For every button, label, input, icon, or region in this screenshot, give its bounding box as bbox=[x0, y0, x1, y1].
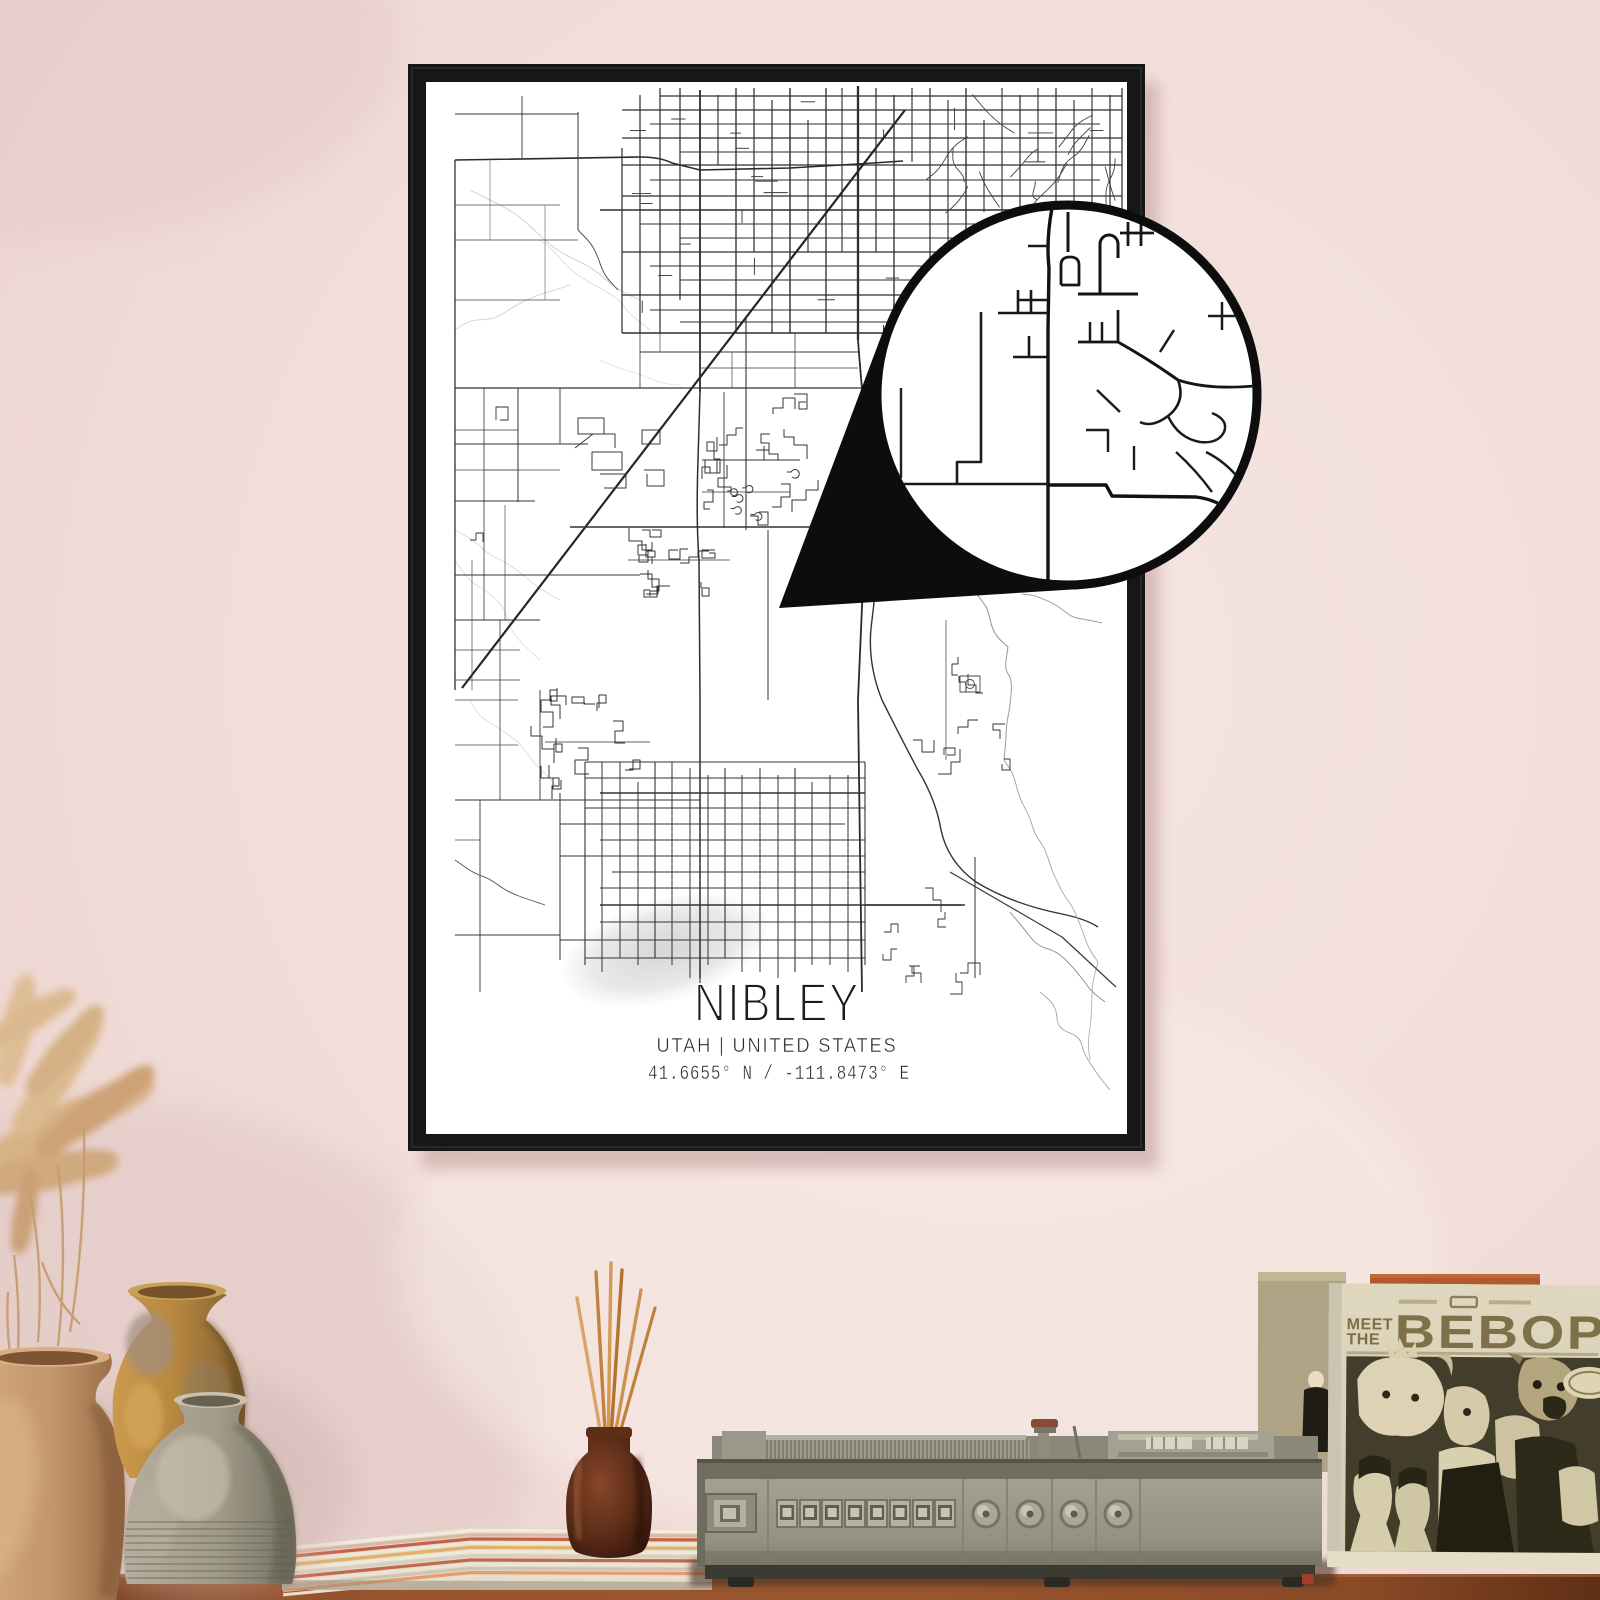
svg-text:UTAH | UNITED STATES: UTAH | UNITED STATES bbox=[657, 1035, 898, 1057]
svg-text:41.6655° N / -111.8473° E: 41.6655° N / -111.8473° E bbox=[648, 1063, 910, 1086]
svg-text:NIBLEY: NIBLEY bbox=[694, 973, 860, 1033]
svg-text:THE: THE bbox=[1346, 1331, 1380, 1348]
svg-text:BEBOP: BEBOP bbox=[1394, 1305, 1600, 1359]
